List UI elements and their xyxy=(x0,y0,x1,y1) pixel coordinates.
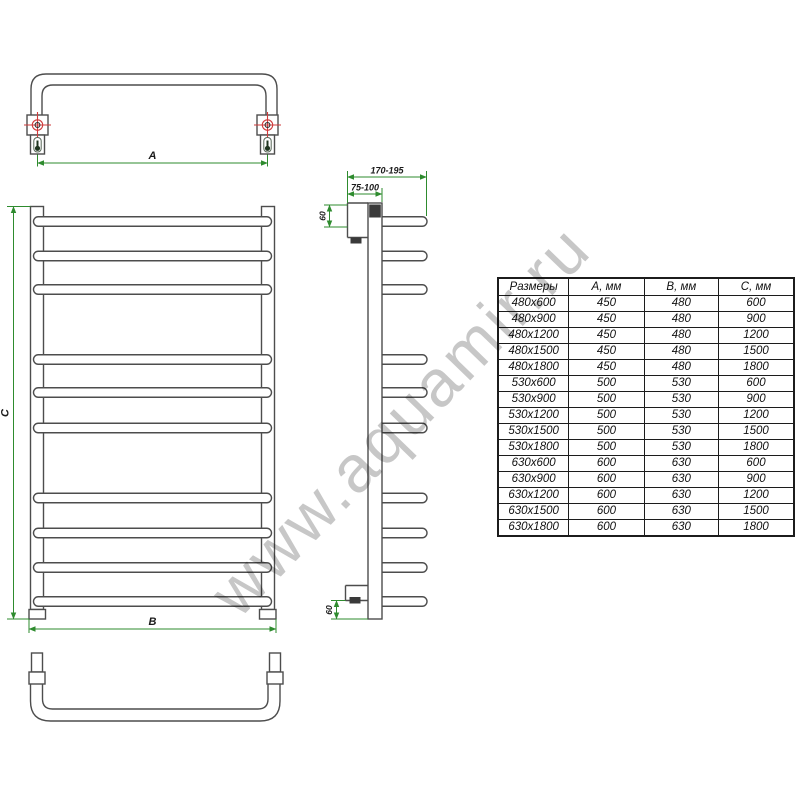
cell-c: 1500 xyxy=(719,424,794,440)
table-row: 480x1500 450 480 1500 xyxy=(498,344,794,360)
cell-a: 450 xyxy=(569,312,644,328)
cell-size: 480x900 xyxy=(498,312,569,328)
cell-size: 630x900 xyxy=(498,472,569,488)
dimension-c-label: C xyxy=(0,408,12,417)
cell-c: 1800 xyxy=(719,520,794,537)
cell-b: 480 xyxy=(644,360,718,376)
size-table: Размеры А, мм В, мм С, мм 480x600 450 48… xyxy=(497,277,795,537)
cell-b: 480 xyxy=(644,312,718,328)
cell-c: 900 xyxy=(719,392,794,408)
cell-c: 900 xyxy=(719,472,794,488)
cell-c: 900 xyxy=(719,312,794,328)
cell-a: 600 xyxy=(569,488,644,504)
table-row: 530x1800 500 530 1800 xyxy=(498,440,794,456)
cell-a: 600 xyxy=(569,504,644,520)
cell-a: 600 xyxy=(569,472,644,488)
cell-b: 480 xyxy=(644,328,718,344)
dimension-depth-total-label: 170-195 xyxy=(370,166,404,176)
cell-a: 600 xyxy=(569,456,644,472)
cell-c: 1500 xyxy=(719,504,794,520)
bottom-view-tube-outer xyxy=(31,684,281,721)
dimension-b-label: B xyxy=(149,616,157,628)
cell-c: 600 xyxy=(719,376,794,392)
cell-size: 530x1500 xyxy=(498,424,569,440)
cell-b: 630 xyxy=(644,520,718,537)
cell-a: 450 xyxy=(569,296,644,312)
cell-b: 530 xyxy=(644,424,718,440)
cell-size: 480x1800 xyxy=(498,360,569,376)
cell-b: 630 xyxy=(644,504,718,520)
rung xyxy=(34,251,272,261)
table-row: 480x1800 450 480 1800 xyxy=(498,360,794,376)
table-row: 630x600 600 630 600 xyxy=(498,456,794,472)
cell-size: 630x1200 xyxy=(498,488,569,504)
dimension-a-label: A xyxy=(148,150,157,162)
header-row: Размеры А, мм В, мм С, мм xyxy=(498,278,794,296)
rung xyxy=(34,217,272,227)
cell-size: 530x1200 xyxy=(498,408,569,424)
table-row: 480x600 450 480 600 xyxy=(498,296,794,312)
top-view-tube-outer xyxy=(31,74,277,118)
dimension-top-offset xyxy=(324,205,348,227)
right-rail xyxy=(262,207,275,610)
rung xyxy=(34,355,272,365)
cell-a: 500 xyxy=(569,440,644,456)
side-view: 170-195 75-100 60 60 xyxy=(318,166,428,620)
cell-size: 630x1500 xyxy=(498,504,569,520)
cell-b: 630 xyxy=(644,488,718,504)
dimension-top-offset-label: 60 xyxy=(318,211,328,221)
table-row: 480x1200 450 480 1200 xyxy=(498,328,794,344)
cell-a: 450 xyxy=(569,360,644,376)
cell-size: 480x600 xyxy=(498,296,569,312)
cell-b: 630 xyxy=(644,472,718,488)
cell-c: 1500 xyxy=(719,344,794,360)
cell-b: 480 xyxy=(644,296,718,312)
top-view: A xyxy=(24,74,281,167)
cell-c: 600 xyxy=(719,296,794,312)
cell-b: 530 xyxy=(644,376,718,392)
cell-a: 600 xyxy=(569,520,644,537)
rung xyxy=(34,597,272,607)
right-connector-nipple xyxy=(270,653,281,672)
bottom-view xyxy=(29,653,283,721)
cell-size: 630x1800 xyxy=(498,520,569,537)
table-row: 630x1200 600 630 1200 xyxy=(498,488,794,504)
cell-size: 480x1500 xyxy=(498,344,569,360)
cell-size: 630x600 xyxy=(498,456,569,472)
table-row: 530x900 500 530 900 xyxy=(498,392,794,408)
cell-c: 1800 xyxy=(719,360,794,376)
table-row: 530x600 500 530 600 xyxy=(498,376,794,392)
cell-a: 500 xyxy=(569,392,644,408)
cell-c: 1200 xyxy=(719,408,794,424)
size-table-header: Размеры А, мм В, мм С, мм xyxy=(498,278,794,296)
front-rungs xyxy=(34,217,272,607)
mounting-bracket-left xyxy=(24,112,51,154)
cell-a: 500 xyxy=(569,408,644,424)
rung xyxy=(34,528,272,538)
wall-bracket-top xyxy=(348,203,369,244)
wall-bracket-bottom xyxy=(346,586,369,604)
table-row: 530x1200 500 530 1200 xyxy=(498,408,794,424)
cell-b: 530 xyxy=(644,392,718,408)
right-connector-collar xyxy=(267,672,283,684)
cell-c: 600 xyxy=(719,456,794,472)
dimension-bottom-offset-label: 60 xyxy=(324,605,334,615)
tube-top-plug xyxy=(369,205,381,218)
cell-b: 530 xyxy=(644,408,718,424)
header-b: В, мм xyxy=(644,278,718,296)
table-row: 480x900 450 480 900 xyxy=(498,312,794,328)
cell-a: 450 xyxy=(569,328,644,344)
cell-b: 480 xyxy=(644,344,718,360)
cell-c: 1200 xyxy=(719,488,794,504)
cell-size: 530x900 xyxy=(498,392,569,408)
right-rail-cap xyxy=(260,610,277,620)
rung xyxy=(34,388,272,398)
dimension-wall-distance-label: 75-100 xyxy=(351,183,379,193)
table-row: 530x1500 500 530 1500 xyxy=(498,424,794,440)
rung xyxy=(34,285,272,295)
cell-c: 1200 xyxy=(719,328,794,344)
header-c: С, мм xyxy=(719,278,794,296)
left-connector-collar xyxy=(29,672,45,684)
left-rail-cap xyxy=(29,610,46,620)
left-rail xyxy=(31,207,44,610)
drawing-sheet: A xyxy=(0,0,800,800)
rung xyxy=(34,493,272,503)
bottom-view-tube-inner xyxy=(43,684,269,709)
top-view-tube-inner xyxy=(42,85,266,118)
rung xyxy=(34,563,272,573)
rung xyxy=(34,423,272,433)
header-a: А, мм xyxy=(569,278,644,296)
cell-c: 1800 xyxy=(719,440,794,456)
header-size: Размеры xyxy=(498,278,569,296)
table-row: 630x1800 600 630 1800 xyxy=(498,520,794,537)
cell-b: 530 xyxy=(644,440,718,456)
cell-size: 480x1200 xyxy=(498,328,569,344)
table-row: 630x1500 600 630 1500 xyxy=(498,504,794,520)
cell-a: 450 xyxy=(569,344,644,360)
cell-a: 500 xyxy=(569,376,644,392)
front-view: C B xyxy=(0,207,276,634)
cell-size: 530x1800 xyxy=(498,440,569,456)
left-connector-nipple xyxy=(32,653,43,672)
table-row: 630x900 600 630 900 xyxy=(498,472,794,488)
side-collector-tube xyxy=(368,203,382,619)
size-table-body: 480x600 450 480 600 480x900 450 480 900 … xyxy=(498,296,794,537)
cell-a: 500 xyxy=(569,424,644,440)
cell-size: 530x600 xyxy=(498,376,569,392)
cell-b: 630 xyxy=(644,456,718,472)
mounting-bracket-right xyxy=(254,112,281,154)
